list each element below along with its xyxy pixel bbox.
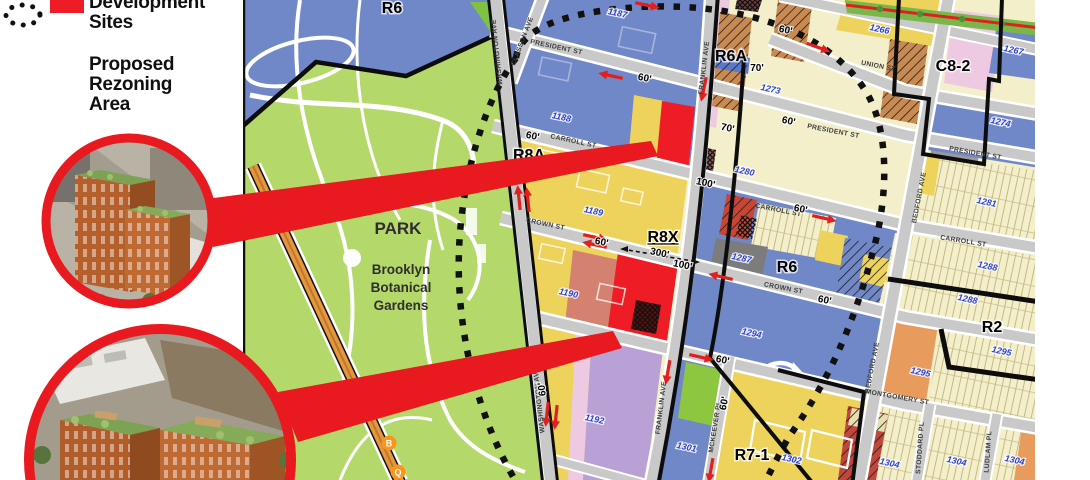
rezoning-map-infographic: B Q PARKBrooklynBotanicalGardens 1183118…	[0, 0, 1090, 480]
gardens-label: Brooklyn	[372, 262, 431, 277]
zone-district-label: R8X	[647, 229, 678, 246]
zone-district-label: R2	[982, 319, 1003, 336]
gardens-label: Botanical	[371, 280, 432, 295]
site-hatch-overlay	[631, 300, 661, 334]
proposed-rezoning-label: Proposed Rezoning Area	[89, 55, 174, 115]
rezoning-dotted-icon	[0, 0, 46, 30]
zone-district-label: R6	[777, 259, 798, 276]
dimension-label: 60'	[536, 382, 548, 397]
zone-district-label: R6A	[715, 48, 747, 65]
subway-b-badge: B	[386, 439, 393, 449]
development-sites-label: Development Sites	[89, 0, 205, 33]
legend-line: Sites	[89, 13, 205, 33]
gardens-label: Gardens	[374, 298, 429, 313]
legend: Development Sites Proposed Rezoning Area	[0, 0, 242, 150]
park-label: PARK	[375, 219, 423, 238]
zone-district-label: C8-2	[936, 58, 971, 75]
legend-line: Rezoning	[89, 75, 174, 95]
zone-district-label: R7-1	[735, 447, 770, 464]
subway-q-badge: Q	[394, 468, 401, 478]
dimension-label: 70'	[750, 63, 764, 74]
zone-district-label: R6	[382, 0, 403, 17]
legend-line: Area	[89, 95, 174, 115]
development-sites-swatch	[50, 0, 84, 13]
legend-line: Proposed	[89, 55, 174, 75]
